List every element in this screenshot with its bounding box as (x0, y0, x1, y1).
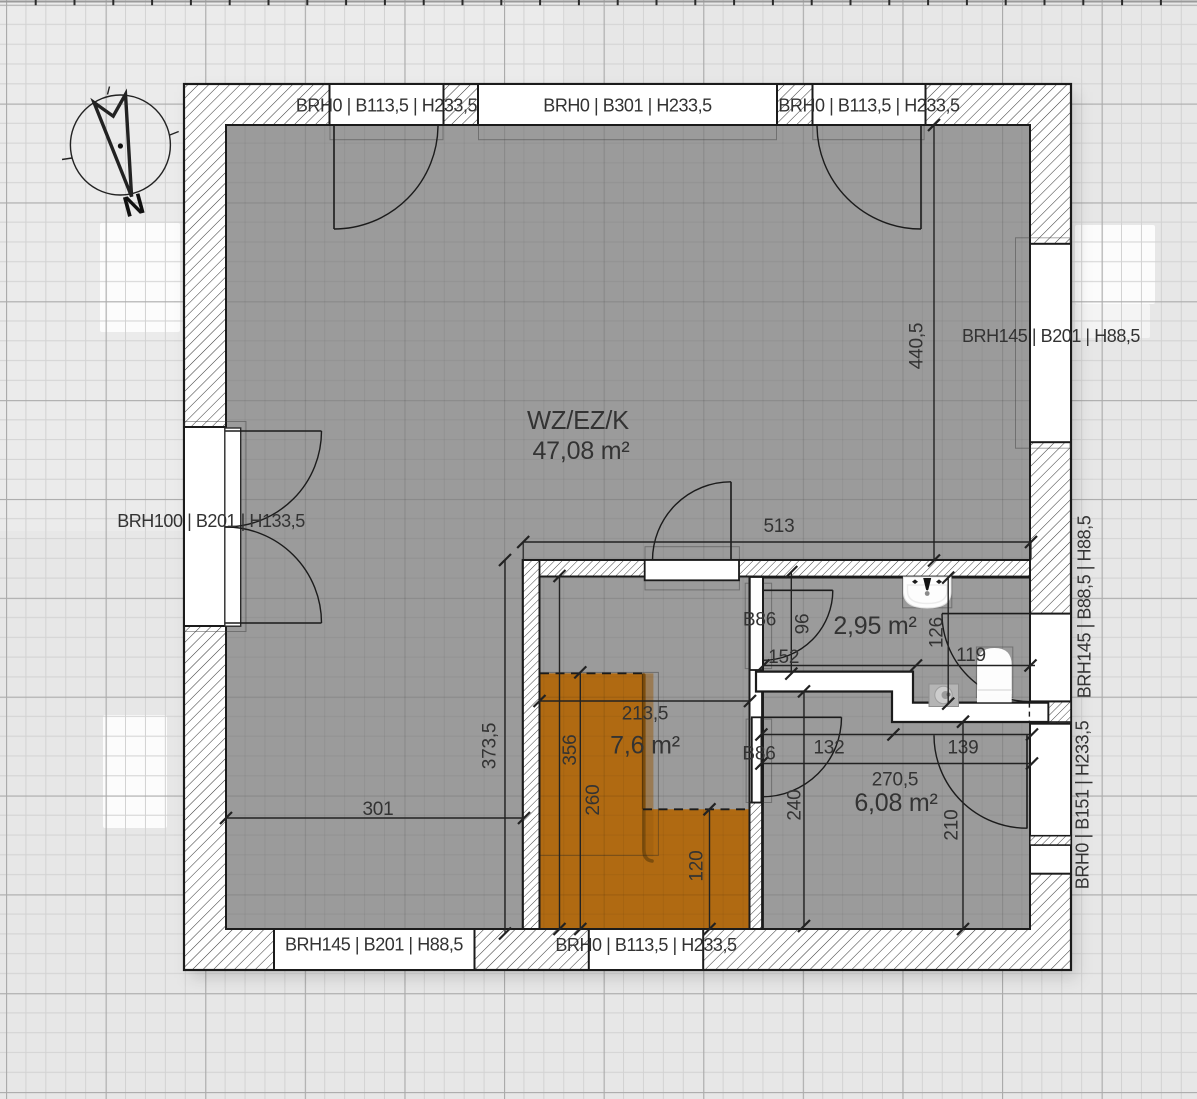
svg-text:301: 301 (362, 799, 393, 820)
svg-text:2,95 m²: 2,95 m² (833, 612, 916, 640)
svg-text:213,5: 213,5 (622, 704, 669, 725)
svg-text:126: 126 (927, 617, 948, 648)
svg-text:513: 513 (763, 516, 794, 537)
svg-text:BRH100 | B201 | H133,5: BRH100 | B201 | H133,5 (117, 511, 305, 531)
svg-text:7,6 m²: 7,6 m² (610, 732, 680, 760)
svg-text:270,5: 270,5 (872, 770, 919, 791)
svg-text:BRH0 | B113,5 | H233,5: BRH0 | B113,5 | H233,5 (296, 96, 478, 116)
svg-text:96: 96 (792, 614, 813, 635)
svg-text:6,08 m²: 6,08 m² (854, 789, 937, 817)
svg-text:440,5: 440,5 (907, 323, 928, 370)
svg-text:152: 152 (768, 647, 799, 668)
svg-text:B86: B86 (742, 744, 775, 765)
svg-text:373,5: 373,5 (480, 723, 501, 770)
svg-text:BRH0 | B151 | H233,5: BRH0 | B151 | H233,5 (1073, 720, 1093, 889)
svg-text:BRH145 | B88,5 | H88,5: BRH145 | B88,5 | H88,5 (1075, 515, 1095, 698)
svg-text:210: 210 (942, 809, 963, 840)
svg-text:240: 240 (785, 789, 806, 820)
svg-text:BRH145 | B201 | H88,5: BRH145 | B201 | H88,5 (962, 326, 1140, 346)
svg-text:BRH0 | B113,5 | H233,5: BRH0 | B113,5 | H233,5 (778, 96, 960, 116)
svg-text:356: 356 (560, 734, 581, 765)
svg-text:119: 119 (956, 645, 986, 666)
svg-text:132: 132 (813, 738, 844, 759)
svg-text:BRH145 | B201 | H88,5: BRH145 | B201 | H88,5 (285, 935, 463, 955)
svg-text:260: 260 (583, 784, 604, 815)
svg-text:47,08 m²: 47,08 m² (532, 437, 629, 465)
svg-text:120: 120 (687, 850, 708, 881)
svg-text:B86: B86 (743, 610, 776, 631)
svg-text:BRH0 | B301 | H233,5: BRH0 | B301 | H233,5 (543, 96, 712, 116)
svg-text:WZ/EZ/K: WZ/EZ/K (527, 407, 629, 435)
svg-text:BRH0 | B113,5 | H233,5: BRH0 | B113,5 | H233,5 (555, 935, 737, 955)
